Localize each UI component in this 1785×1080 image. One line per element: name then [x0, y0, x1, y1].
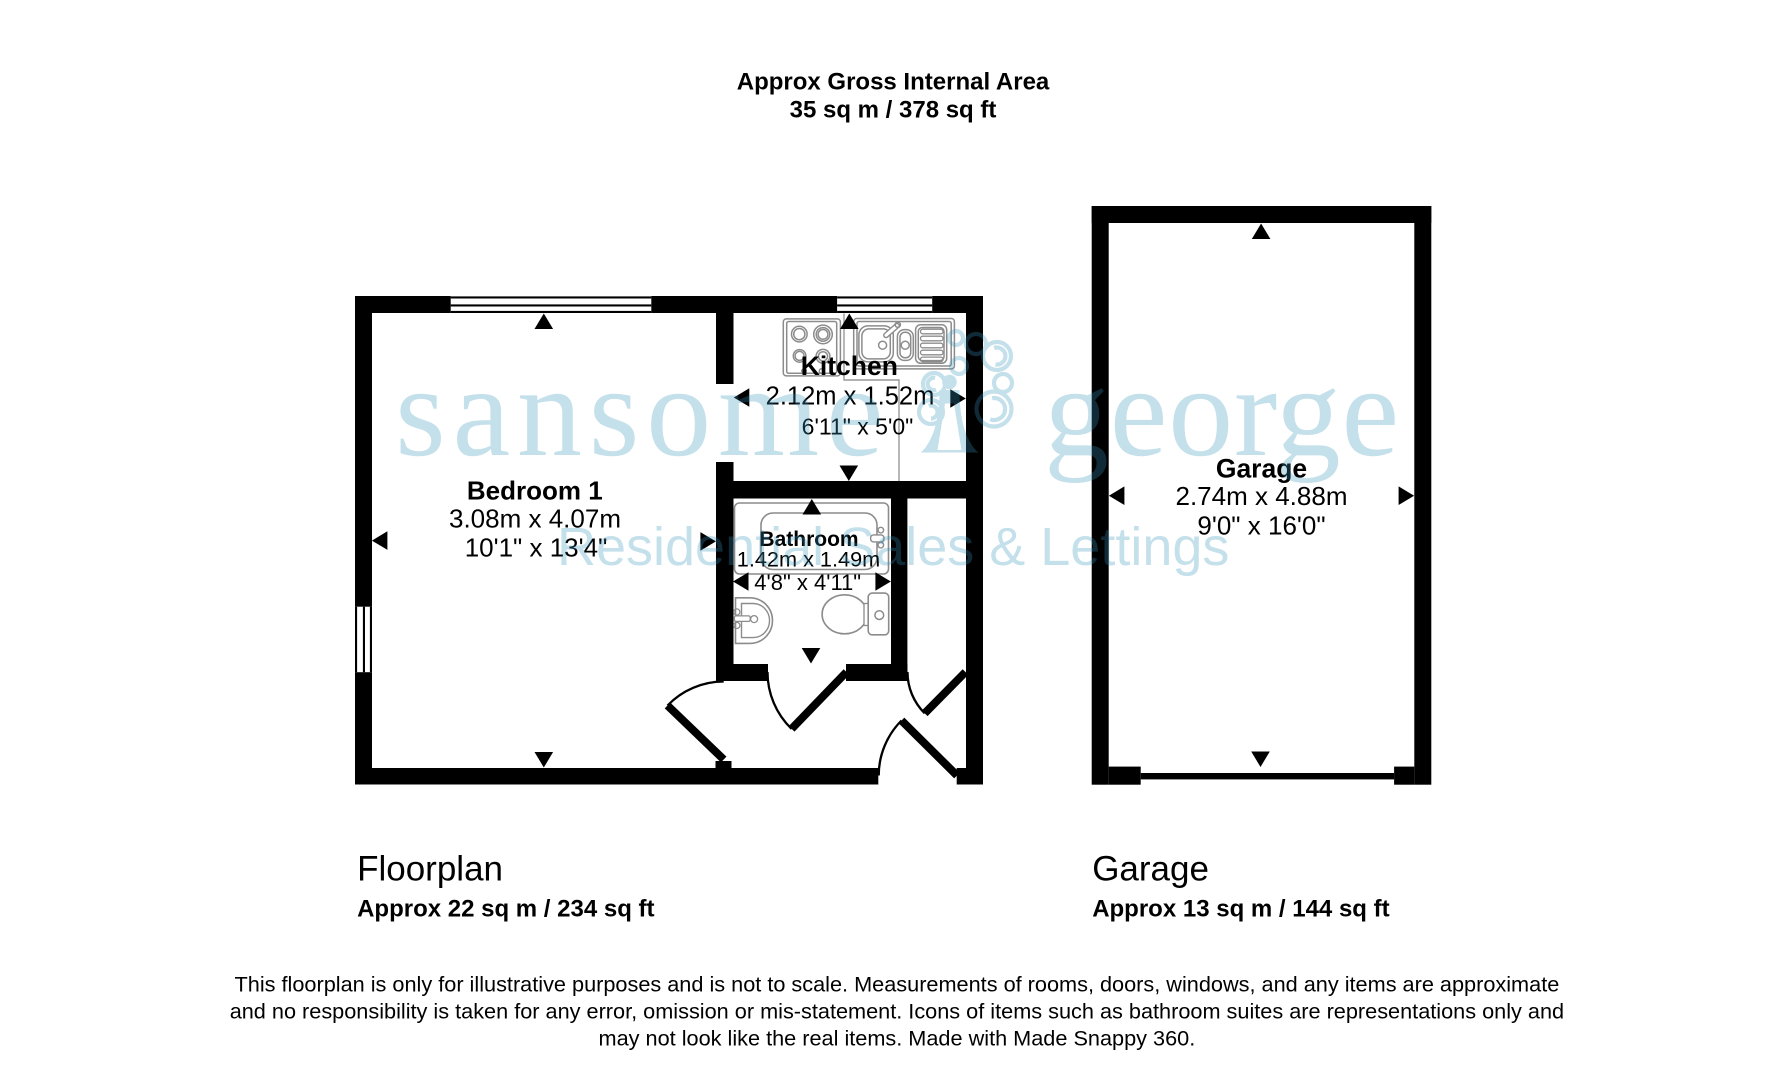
- svg-text:Residential Sales & Lettings: Residential Sales & Lettings: [557, 517, 1229, 577]
- svg-text:Floorplan: Floorplan: [357, 849, 503, 888]
- svg-text:may not look like the real ite: may not look like the real items. Made w…: [599, 1026, 1196, 1051]
- svg-text:35 sq m / 378 sq ft: 35 sq m / 378 sq ft: [790, 96, 997, 123]
- svg-text:and no responsibility is taken: and no responsibility is taken for any e…: [230, 999, 1564, 1024]
- svg-text:sansome: sansome: [395, 340, 890, 484]
- svg-text:Approx 22 sq m / 234 sq ft: Approx 22 sq m / 234 sq ft: [357, 896, 654, 923]
- svg-text:Garage: Garage: [1092, 849, 1209, 888]
- svg-text:This floorplan is only for ill: This floorplan is only for illustrative …: [235, 972, 1560, 997]
- svg-text:Approx Gross Internal Area: Approx Gross Internal Area: [737, 69, 1050, 96]
- svg-text:2.74m x 4.88m: 2.74m x 4.88m: [1176, 481, 1348, 511]
- svg-text:george: george: [1044, 340, 1400, 484]
- svg-text:Approx 13 sq m / 144 sq ft: Approx 13 sq m / 144 sq ft: [1092, 896, 1389, 923]
